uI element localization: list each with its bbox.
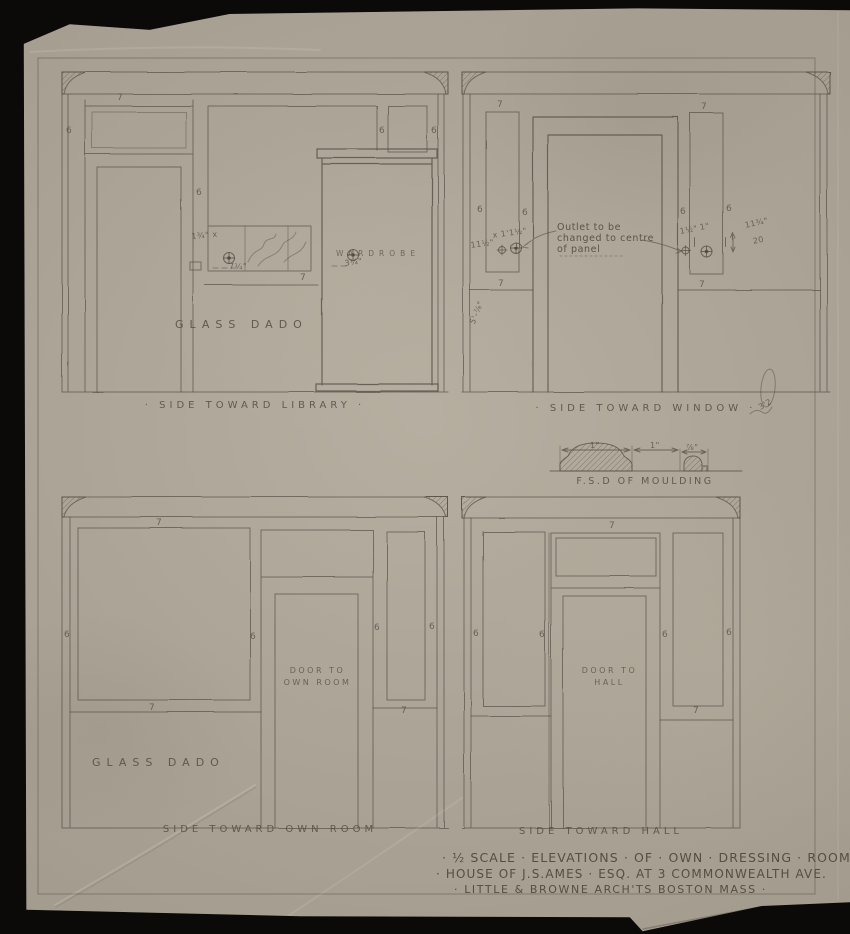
corner-bracket [62,72,86,94]
elevation-hall [462,497,740,828]
outlet-note: Outlet to be changed to centre of panel [557,222,654,255]
door-to-hall-label: DOOR TO HALL [562,665,657,689]
door-label-line: HALL [562,677,657,689]
moulding-detail-caption: F.S.D OF MOULDING [545,476,745,487]
caption-side-toward-library: · SIDE TOWARD LIBRARY · [62,400,448,411]
dimension-line [695,233,735,252]
title-line-3: · LITTLE & BROWNE ARCH'TS BOSTON MASS · [454,882,814,898]
door-label-line: DOOR TO [270,665,365,677]
corner-bracket [806,72,830,94]
scanned-drawing-page: { "sheet": { "background_color": "#0b0a0… [0,0,850,934]
corner-bracket [462,72,486,94]
dimension-line [682,450,706,454]
paper-sheet: · SIDE TOWARD LIBRARY · · SIDE TOWARD WI… [0,0,850,934]
outlet-symbol [511,243,522,254]
elevation-library [62,72,448,392]
caption-side-toward-window: · SIDE TOWARD WINDOW · [462,403,830,414]
corner-bracket [424,497,448,517]
leader-line [522,231,556,248]
outlet-symbol [224,253,235,264]
moulding-profile-large [560,443,632,471]
corner-bracket [716,497,740,518]
title-line-2: · HOUSE OF J.S.AMES · ESQ. AT 3 COMMONWE… [436,866,814,882]
moulding-detail [550,443,742,471]
outlet-symbol [702,247,713,258]
door-to-own-room-label: DOOR TO OWN ROOM [270,665,365,689]
pencil-scribble [248,232,306,266]
glass-dado-label: GLASS DADO [92,756,225,769]
outlet-note-line: of panel [557,244,654,255]
wardrobe-outline [316,149,438,391]
dimension-line [634,448,678,452]
title-block: · ½ SCALE · ELEVATIONS · OF · OWN · DRES… [432,850,814,898]
caption-side-toward-own-room: SIDE TOWARD OWN ROOM [90,824,450,835]
door-label-line: DOOR TO [562,665,657,677]
title-line-1: · ½ SCALE · ELEVATIONS · OF · OWN · DRES… [442,850,814,866]
pencil-linework [0,0,850,934]
moulding-profile-small [684,456,707,471]
outlet-symbol [497,245,507,255]
elevation-own-room [62,497,448,828]
corner-bracket [462,497,486,518]
corner-bracket [62,497,86,517]
outlet-note-line: changed to centre [557,233,654,244]
door-label-line: OWN ROOM [270,677,365,689]
outlet-note-line: Outlet to be [557,222,654,233]
glass-dado-label: GLASS DADO [175,318,308,331]
corner-bracket [424,72,448,94]
caption-side-toward-hall: SIDE TOWARD HALL [462,826,740,837]
wardrobe-label: WARDROBE [327,249,429,258]
